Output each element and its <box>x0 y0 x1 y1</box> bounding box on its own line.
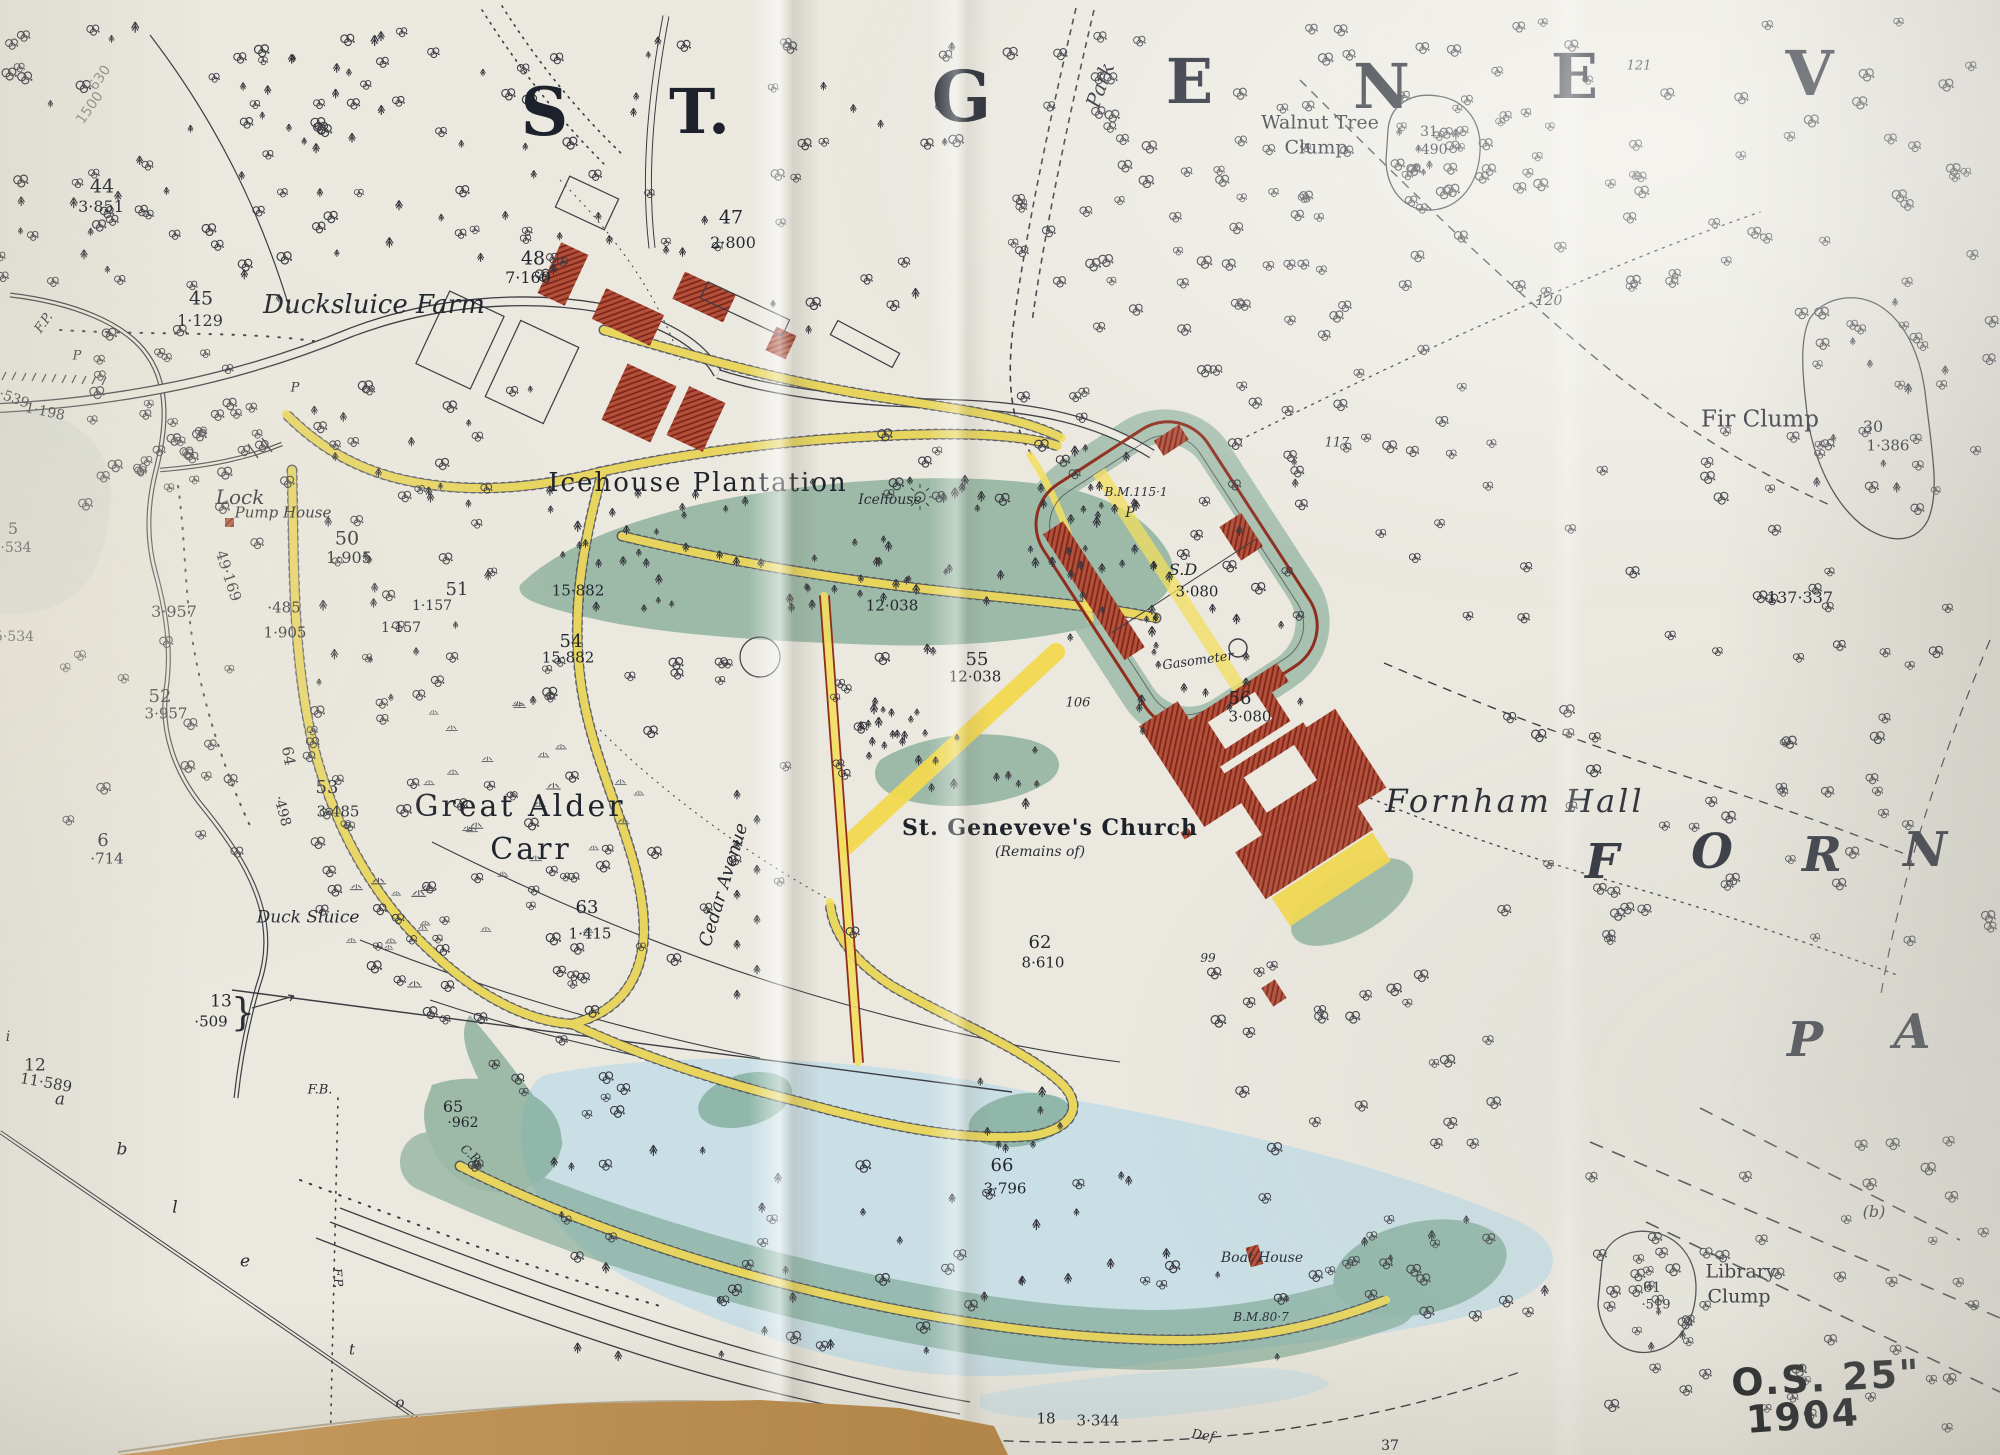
map-label-p-87: P <box>1787 1016 1823 1064</box>
map-label-714-66: ·714 <box>90 852 123 867</box>
map-label-1-905-39: 1·905 <box>264 626 307 641</box>
map-label-498-68: ·498 <box>271 794 293 828</box>
map-label-49-169-35: 49·169 <box>213 549 243 604</box>
map-label-1-157-46: 1·157 <box>381 621 421 635</box>
map-label-37-115: 37 <box>1381 1439 1399 1453</box>
map-label-62-81: 62 <box>1029 934 1052 952</box>
map-label-b-120: (b) <box>1863 1204 1886 1220</box>
map-label-b-97: b <box>117 1142 128 1159</box>
map-label-509-91: ·509 <box>194 1015 227 1030</box>
map-label-e-99: e <box>240 1254 250 1271</box>
map-label-120-13: 120 <box>1536 294 1563 308</box>
map-label-50-36: 50 <box>335 530 359 549</box>
map-label-5-534-43: 5·534 <box>0 630 34 644</box>
map-label-s-d-59: S.D <box>1169 562 1197 578</box>
map-label-3-851-20: 3·851 <box>78 199 124 215</box>
map-label-boat-house-108: Boat House <box>1221 1251 1303 1265</box>
map-label-12-038-56: 12·038 <box>949 670 1002 685</box>
map-label-12-038-54: 12·038 <box>866 599 919 614</box>
map-label-carr-72: Carr <box>490 835 572 865</box>
map-label-30-16: 30 <box>1863 419 1883 435</box>
map-label-490-12: ·490 <box>1416 143 1447 157</box>
map-label-117-14: 117 <box>1325 437 1350 450</box>
map-label-b-m-115-1-57: B.M.115·1 <box>1104 486 1167 498</box>
map-label-1-198-32: 1·198 <box>24 401 66 423</box>
map-label-p-26: P <box>291 382 300 395</box>
map-label-fir-clump-15: Fir Clump <box>1701 409 1819 432</box>
map-label-3-796-107: 3·796 <box>984 1182 1027 1197</box>
map-label-f-83: F <box>1585 838 1619 886</box>
map-label-clump-10: Clump <box>1284 139 1347 158</box>
map-label-2-800-28: 2·800 <box>710 235 756 251</box>
map-label-137-337-18: 137·337 <box>1767 590 1833 606</box>
map-label-1-129-22: 1·129 <box>177 313 223 329</box>
map-label-cedar-avenue-73: Cedar Avenue <box>697 821 752 949</box>
map-label-l-98: l <box>172 1200 177 1217</box>
map-label-53-69: 53 <box>316 779 339 797</box>
map-label-3-344-112: 3·344 <box>1077 1414 1120 1429</box>
map-label-56-62: 56 <box>1229 690 1252 708</box>
map-label-def-110: Def <box>1191 1428 1216 1444</box>
map-label-64-67: 64 <box>279 745 297 766</box>
map-label-a-88: A <box>1893 1008 1930 1056</box>
map-label-t-1: T. <box>669 81 731 143</box>
map-label-i-95: i <box>6 1030 10 1044</box>
map-label-61-118: 61 <box>1643 1281 1661 1295</box>
map-label-962-103: ·962 <box>447 1116 478 1130</box>
map-label-48-29: 48 <box>521 250 545 269</box>
map-label-p-58: P <box>1125 506 1134 520</box>
map-label-clump-117: Clump <box>1707 1288 1770 1307</box>
map-label-1-415-76: 1·415 <box>569 927 612 942</box>
map-label-pump-house-34: Pump House <box>235 506 332 521</box>
map-label-s-0: S <box>521 79 570 145</box>
map-label-mark-114: } <box>804 1434 819 1455</box>
map-label-15-882-53: 15·882 <box>542 651 595 666</box>
map-label-534-42: ·534 <box>0 541 31 555</box>
map-label-1-157-45: 1·157 <box>412 599 452 613</box>
map-label-1-386-17: 1·386 <box>1867 439 1910 454</box>
map-label-65-102: 65 <box>443 1099 463 1115</box>
map-label-ducksluice-farm-23: Ducksluice Farm <box>263 292 485 318</box>
map-label-f-p-24: F.P. <box>33 311 56 336</box>
map-label-47-27: 47 <box>719 209 743 228</box>
map-label-n-86: N <box>1903 826 1947 874</box>
map-label-1500-124: 1500 <box>74 89 106 126</box>
map-label-r-85: R <box>1802 831 1842 879</box>
map-label-icehouse-50: Icehouse <box>858 493 922 507</box>
map-label-e-5: E <box>1551 46 1599 108</box>
map-label-remains-of-78: (Remains of) <box>995 845 1085 859</box>
map-label-icehouse-plantation-49: Icehouse Plantation <box>548 470 848 496</box>
map-label-gasometer-61: Gasometer <box>1162 650 1235 673</box>
map-label-3-080-60: 3·080 <box>1176 585 1219 600</box>
map-label-duck-sluice-74: Duck Sluice <box>257 910 360 927</box>
map-label-51-44: 51 <box>446 581 469 599</box>
map-label-3-485-70: 3·485 <box>317 805 360 820</box>
map-label-63-75: 63 <box>576 899 599 917</box>
map-label-3-080-63: 3·080 <box>1229 710 1272 725</box>
map-label-great-alder-71: Great Alder <box>414 792 625 822</box>
map-label-3-957-48: 3·957 <box>145 707 188 722</box>
map-label-5-41: 5 <box>8 521 18 537</box>
map-label-3-957-40: 3·957 <box>151 604 197 620</box>
map-label-15-882-51: 15·882 <box>552 584 605 599</box>
map-label-walnut-tree-9: Walnut Tree <box>1261 114 1379 133</box>
map-label-630-123: 630 <box>87 63 114 93</box>
map-label-44-19: 44 <box>90 178 114 197</box>
map-label-a-96: a <box>55 1092 65 1109</box>
map-label-o-101: o <box>395 1396 404 1411</box>
map-label-park-7: Park <box>1083 60 1118 110</box>
map-label-66-106: 66 <box>991 1157 1014 1175</box>
map-label-7-160-30: 7·160 <box>505 270 551 286</box>
map-label-45-21: 45 <box>189 290 213 309</box>
map-label-st-geneveve-s-church-77: St. Geneveve's Church <box>902 817 1198 839</box>
map-label-106-64: 106 <box>1066 697 1091 710</box>
map-label-6-65: 6 <box>97 832 108 850</box>
map-label-13-90: 13 <box>210 994 232 1011</box>
map-label-99-80: 99 <box>1200 952 1215 964</box>
map-labels: ST.GENEVPark121Walnut TreeClump31·490120… <box>0 0 2000 1455</box>
map-label-1-905-37: 1·905 <box>326 550 372 566</box>
map-label-18-111: 18 <box>1036 1412 1055 1427</box>
map-label-8-610-82: 8·610 <box>1022 956 1065 971</box>
map-label-52-47: 52 <box>149 688 172 706</box>
map-label-mark-92: } <box>231 993 255 1031</box>
map-label-p-25: P <box>73 350 82 363</box>
map-label-f-p-105: F.P. <box>331 1268 345 1289</box>
map-label-e-3: E <box>1166 51 1214 113</box>
map-label-o-84: O <box>1691 828 1733 876</box>
map-label-f-b-89: F.B. <box>308 1084 333 1097</box>
map-label-v-6: V <box>1785 43 1834 105</box>
map-label-17-113: 17 <box>780 1440 799 1455</box>
map-label-55-55: 55 <box>966 651 989 669</box>
map-label-t-100: t <box>349 1343 355 1358</box>
map-label-g-2: G <box>932 62 993 132</box>
map-label-fornham-hall-79: Fornham Hall <box>1385 785 1644 817</box>
map-label-519-119: ·519 <box>1642 1299 1671 1312</box>
map-label-n-4: N <box>1353 56 1411 118</box>
map-label-library-116: Library <box>1705 1263 1776 1282</box>
map-label-1904-122: 1904 <box>1745 1393 1861 1439</box>
map-label-485-38: ·485 <box>267 601 300 616</box>
map-label-121-8: 121 <box>1627 60 1652 73</box>
map-label-31-11: 31 <box>1420 125 1438 139</box>
map-label-b-m-80-7-109: B.M.80·7 <box>1233 1311 1288 1323</box>
map-sheet-photo: ST.GENEVPark121Walnut TreeClump31·490120… <box>0 0 2000 1455</box>
map-label-c-r-104: C.R. <box>458 1142 485 1168</box>
